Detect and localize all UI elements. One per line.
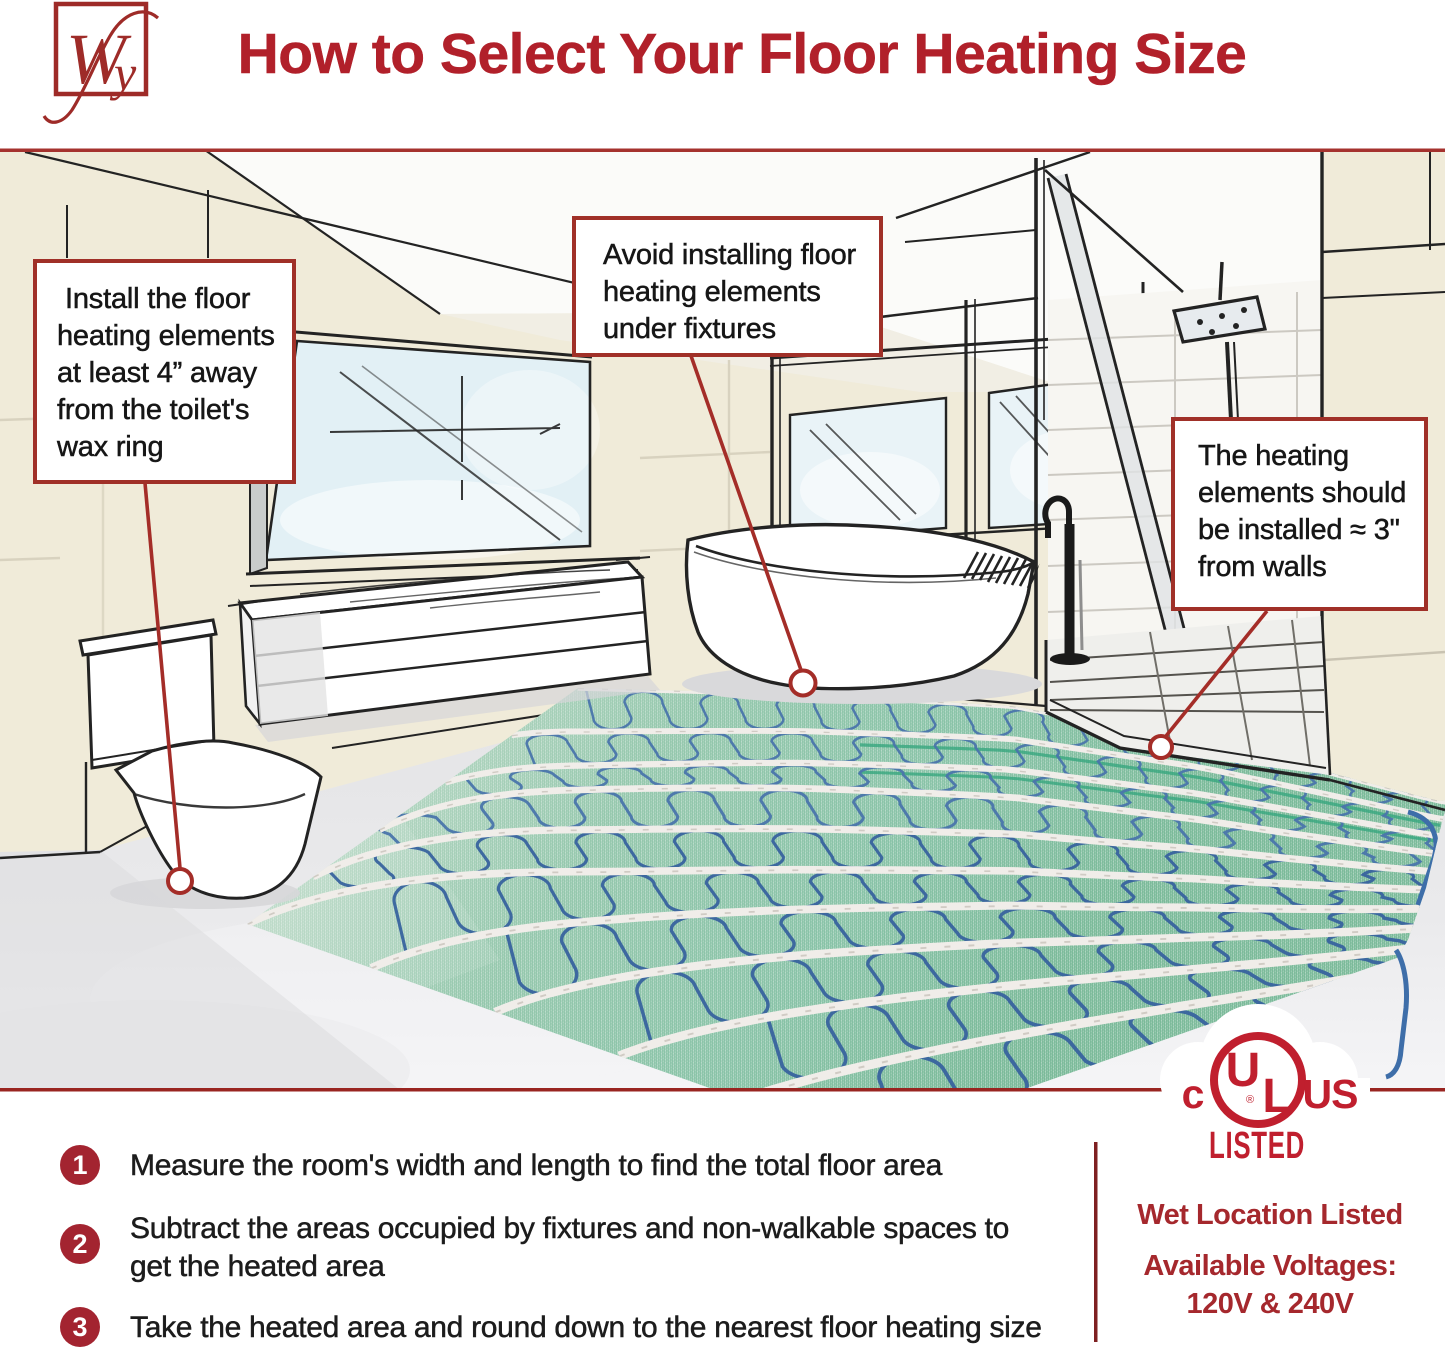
svg-text:LISTED: LISTED [1209, 1124, 1305, 1166]
svg-text:2: 2 [72, 1229, 87, 1259]
svg-text:US: US [1303, 1071, 1358, 1117]
svg-text:1: 1 [72, 1150, 87, 1180]
svg-text:3: 3 [72, 1312, 87, 1342]
svg-text:U: U [1226, 1044, 1261, 1097]
svg-text:c: c [1182, 1071, 1205, 1117]
svg-text:L: L [1262, 1070, 1291, 1123]
svg-text:®: ® [1246, 1094, 1254, 1106]
